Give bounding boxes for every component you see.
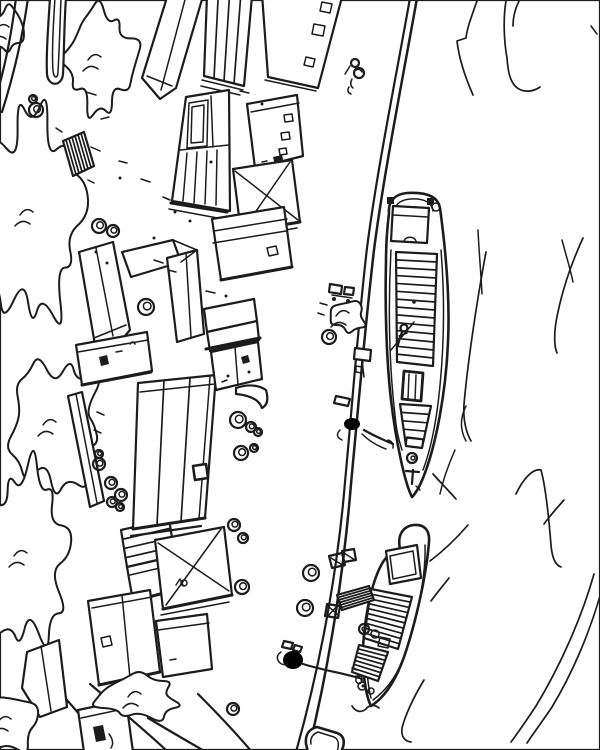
barrel-top [302,603,310,611]
current-stroke [527,596,600,743]
building-long-gabled-top [142,0,203,99]
building-plank-roof [204,0,252,86]
barrel-top [119,505,123,509]
barrel-top [98,452,102,456]
barrel [322,330,336,344]
building-outline [79,242,130,351]
barrel [250,444,258,452]
rope-tail [337,430,342,440]
barrel [238,533,248,543]
wing-south [167,250,204,342]
street-bottom-3 [148,718,206,750]
ground-dot [119,177,122,180]
hatch-box [402,371,423,401]
curved-davit [236,385,267,408]
barrel-top [240,583,247,590]
bow-wave [352,705,379,711]
ground-dot [210,161,213,164]
door-tick [170,659,176,660]
warehouse-pair-west [88,590,160,685]
barrel-top [111,227,117,233]
mooring-rope [303,664,359,678]
current-stroke [402,680,424,742]
barrel-top [308,568,316,576]
barrel-top [253,446,257,450]
barrel-top [109,479,115,485]
mooring-cleat [334,396,350,406]
barrel [227,703,239,715]
mooring-cleat [282,641,302,652]
tree-cargo-scrub-pile [331,301,366,333]
current-stroke [464,252,486,441]
barrel [228,519,240,531]
sketch-page: Aerial pen-and-ink sketch of a river qua… [0,0,600,750]
building-outline [88,590,160,685]
barrel [138,299,154,315]
tree-canopy-left-large [0,100,88,324]
barrel-top [110,499,115,504]
bollard-rope-south [277,641,362,682]
sign-board [354,348,371,361]
door-tick [262,161,267,162]
harbor-sketch: Aerial pen-and-ink sketch of a river qua… [0,0,600,750]
building-outline [76,332,152,385]
barrel-top [257,430,261,434]
barrel [95,450,103,458]
building-office-low [76,332,152,385]
ground-dot [95,251,98,254]
barrel [297,600,313,616]
barrel [116,503,124,511]
barrel [230,412,246,428]
ground-dot [189,220,192,223]
current-stroke [440,406,466,494]
ground-dot [174,211,177,214]
barrel-top [97,222,104,229]
barrel [303,565,319,581]
barrel [254,428,262,436]
current-stroke [513,1,519,26]
foliage-outline [0,697,38,750]
building-windows-top [262,0,342,91]
tree-canopy-upper [62,1,141,118]
current-stroke [504,1,540,91]
barrel-top [232,521,238,527]
building-wide-low [212,207,292,280]
roof-window [193,464,208,480]
deck-dot [412,300,416,304]
pavilion-x-roof-south [155,527,232,615]
ground-dot [153,237,156,240]
window-dot [248,371,251,374]
barge-hatch-cover [396,252,437,366]
tree-tuft-bottom-corner [0,697,38,750]
barrel-top [119,491,125,497]
barrel-top [143,302,151,310]
current-stroke [457,1,477,95]
barrel [105,477,117,489]
figure-legs [348,79,353,94]
warehouse-pair-east [156,614,212,677]
barrel-top [32,97,36,101]
window-dot [227,375,230,378]
cart-wheel [332,297,336,301]
building-long-narrow-mid [79,242,130,351]
rope-coil-core [349,422,355,427]
barrel-top [327,333,334,340]
bow-ring-dot [362,685,365,688]
current-stroke [511,574,594,742]
current-stroke [478,26,597,294]
building-doors-right [247,95,303,168]
barrel-top [235,415,243,423]
crate-diagonal [344,553,355,560]
barrel [92,219,106,233]
bollard-rope-north [334,396,393,449]
current-stroke [430,525,468,601]
current-stroke [555,238,583,353]
barrel-top [241,535,246,540]
pier-wall [47,0,66,84]
ground-dot [261,103,264,106]
dock-figure [345,59,364,94]
ground-dot [225,295,228,298]
ground-dot [106,262,109,265]
foliage-outline [0,100,88,324]
barrel [234,446,248,460]
barrel-top [249,424,254,429]
boat-partial-bottom [306,727,344,750]
barrel [235,580,249,594]
barrel-top [231,705,237,711]
foliage-outline [62,1,141,118]
barrel-top [239,449,246,456]
mooring-rope [364,430,393,444]
foliage-outline [331,301,366,333]
barrel-top [97,460,103,466]
rope-coil-core [291,658,295,662]
davit-arm [236,385,267,408]
barrel [107,225,119,237]
hand-cart [329,284,354,303]
cart-body [329,284,354,295]
street-bottom-4 [198,694,252,750]
current-stroke [516,470,561,567]
figure-head [351,59,359,67]
building-tall-panels [169,90,230,219]
building-l-shaped [122,240,204,342]
barrel [29,95,37,103]
